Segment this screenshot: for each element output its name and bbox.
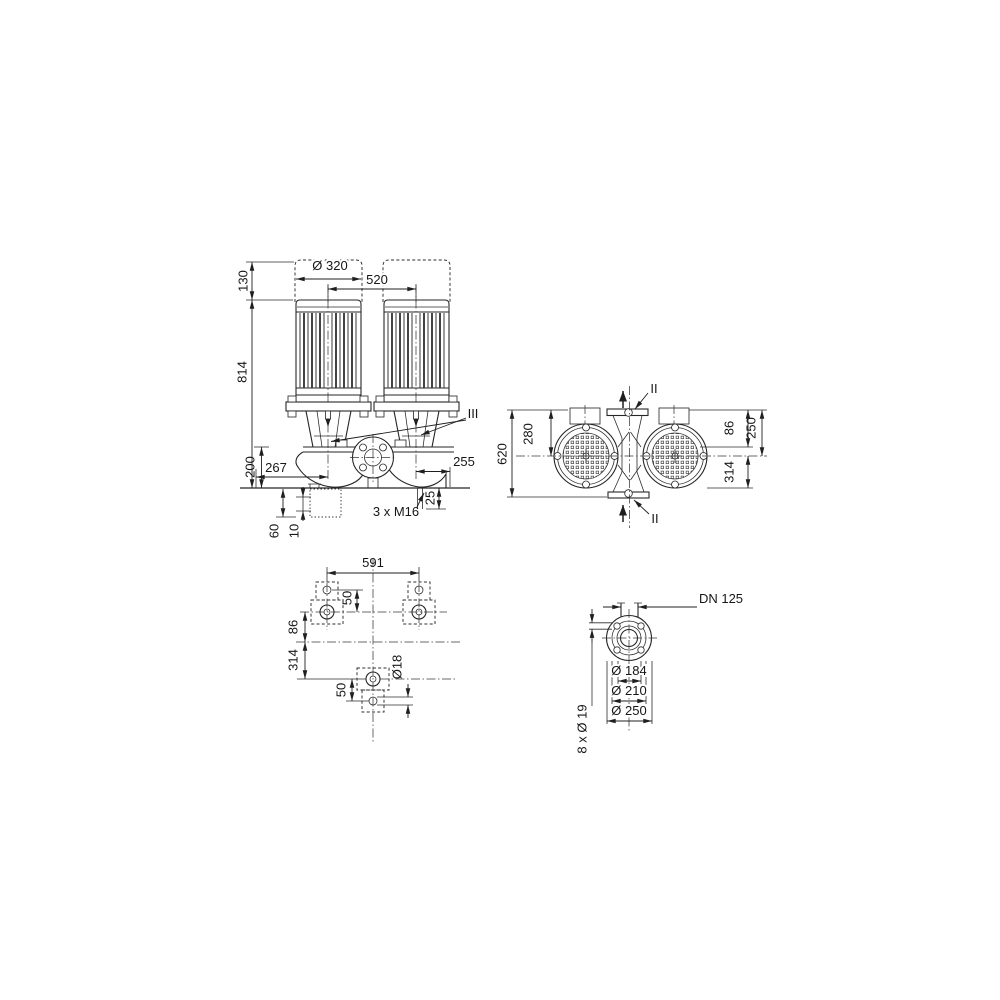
dim-814-label: 814 <box>235 361 250 383</box>
dim-250-flange-label: Ø 250 <box>611 703 646 718</box>
foundation-dimensions: 591 50 86 314 50 Ø18 <box>286 555 420 718</box>
technical-drawing-canvas: 130 814 200 Ø 320 520 267 255 25 3 x M16 <box>0 0 1000 1000</box>
bolt-count-label: 8 x Ø 19 <box>575 704 590 753</box>
front-elevation-view: 130 814 200 Ø 320 520 267 255 25 3 x M16 <box>235 258 479 538</box>
section-III-label: III <box>468 406 479 421</box>
flange-dimensions: DN 125 8 x Ø 19 Ø 184 Ø 210 Ø 250 <box>575 591 744 754</box>
motor-clearance-box-right <box>383 260 450 302</box>
dim-25-label: 25 <box>423 491 438 505</box>
dim-314-label: 314 <box>722 461 737 483</box>
dim-86-label: 86 <box>722 421 737 435</box>
dim-320-label: Ø 320 <box>312 258 347 273</box>
dim-10-label: 10 <box>287 524 302 538</box>
dim-520-label: 520 <box>366 272 388 287</box>
top-view-dimensions: 620 280 86 250 314 II II <box>495 381 768 526</box>
section-II-bottom-label: II <box>651 511 658 526</box>
dim-86-foundation-label: 86 <box>286 620 301 634</box>
dim-314-foundation-label: 314 <box>286 649 301 671</box>
dim-200-label: 200 <box>243 456 258 478</box>
flange-detail-view: DN 125 8 x Ø 19 Ø 184 Ø 210 Ø 250 <box>575 591 744 754</box>
dim-210-label: Ø 210 <box>611 683 646 698</box>
dim-267-label: 267 <box>265 460 287 475</box>
dim-50-lower-label: 50 <box>334 683 349 697</box>
dim-50-upper-label: 50 <box>340 591 355 605</box>
dim-591-label: 591 <box>362 555 384 570</box>
pump-dimensional-drawing: 130 814 200 Ø 320 520 267 255 25 3 x M16 <box>0 0 1000 1000</box>
dim-184-label: Ø 184 <box>611 663 646 678</box>
dim-60-label: 60 <box>267 524 282 538</box>
dim-280-label: 280 <box>521 423 536 445</box>
anchor-bolt-label: 3 x M16 <box>373 504 419 519</box>
dim-250-label: 250 <box>744 417 759 439</box>
dim-620-label: 620 <box>495 443 510 465</box>
dim-18-label: Ø18 <box>390 655 405 680</box>
dn-125-label: DN 125 <box>699 591 743 606</box>
foundation-plan-view: 591 50 86 314 50 Ø18 <box>286 555 461 742</box>
dim-255-label: 255 <box>453 454 475 469</box>
top-plan-view: 620 280 86 250 314 II II <box>495 381 768 528</box>
section-II-top-label: II <box>650 381 657 396</box>
dim-130-label: 130 <box>236 270 251 292</box>
